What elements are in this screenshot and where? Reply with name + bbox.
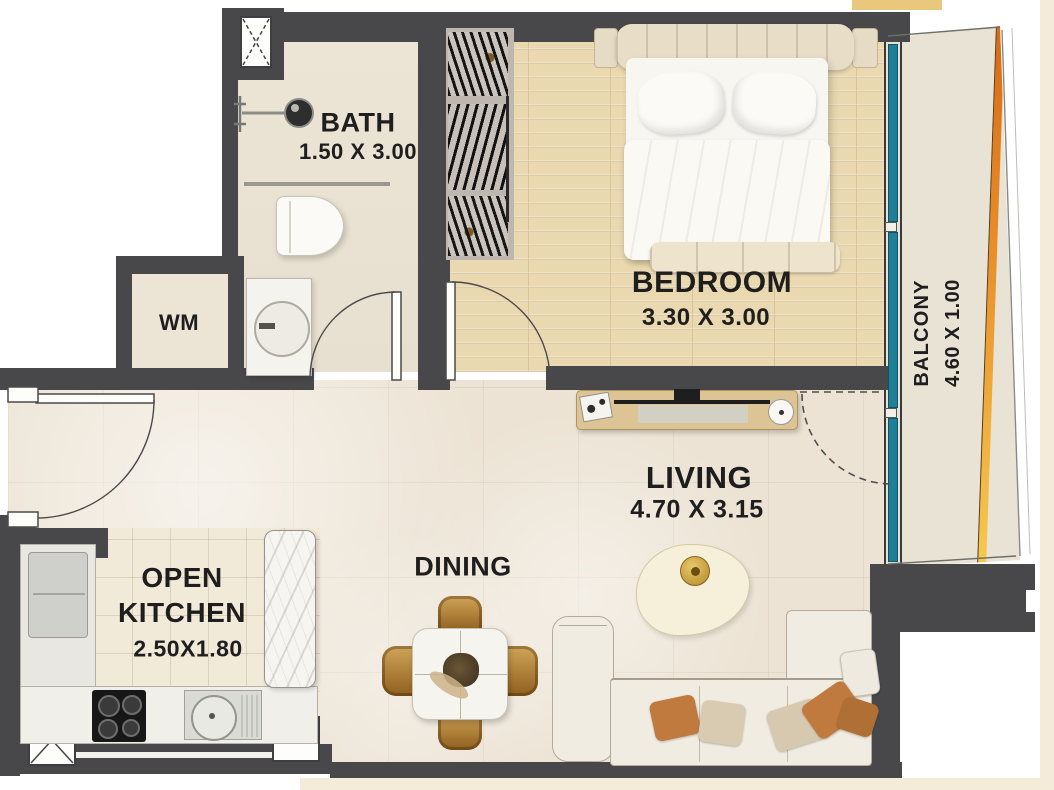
decor-bowl xyxy=(680,556,710,586)
page-edge-bottom xyxy=(300,778,1054,790)
bedroom-dims: 3.30 X 3.00 xyxy=(642,304,770,332)
corner-accent-top xyxy=(852,0,942,10)
cooktop xyxy=(92,690,146,742)
wardrobe-clothes xyxy=(448,32,508,96)
sink-drainboard xyxy=(241,695,259,737)
bath-label: BATH xyxy=(321,108,396,139)
kitchen-label-line2: KITCHEN xyxy=(118,597,246,629)
tv-box xyxy=(674,389,700,402)
wm-label: WM xyxy=(159,310,199,336)
window-glass xyxy=(888,44,898,222)
nightstand xyxy=(594,28,618,68)
chaise-lounge xyxy=(552,616,614,762)
vanity-sink xyxy=(246,278,312,376)
toilet xyxy=(276,196,344,256)
faucet xyxy=(259,323,275,329)
fridge xyxy=(28,552,88,638)
page-edge-right xyxy=(1040,0,1054,790)
kitchen-counter-bottom xyxy=(20,686,318,744)
sink-basin xyxy=(254,301,310,357)
balcony-label: BALCONY xyxy=(907,279,938,387)
nightstand xyxy=(852,28,878,68)
bed-pillow xyxy=(730,69,818,137)
wall-bath-left xyxy=(222,12,238,264)
wall-bedroom-bottom xyxy=(546,366,888,390)
dining-chair xyxy=(438,596,482,632)
balcony-label-group: BALCONY 4.60 X 1.00 xyxy=(868,238,1008,428)
living-label: LIVING xyxy=(646,460,752,496)
bath-dims: 1.50 X 3.00 xyxy=(299,139,417,165)
balcony-dims: 4.60 X 1.00 xyxy=(938,279,969,387)
dining-table xyxy=(412,628,508,720)
living-dims: 4.70 X 3.15 xyxy=(630,496,763,525)
window-mullion xyxy=(885,222,897,232)
record-player xyxy=(768,399,794,425)
wardrobe-clothes xyxy=(448,196,508,256)
wardrobe-clothes xyxy=(448,104,508,190)
kitchen-island xyxy=(264,530,316,688)
window-glass xyxy=(888,418,898,562)
kitchen-sink xyxy=(184,690,262,740)
tv-glow xyxy=(638,405,748,423)
kitchen-dims: 2.50X1.80 xyxy=(133,636,242,663)
wall-right-lower-horizontal xyxy=(870,564,1035,632)
kitchen-window-slot xyxy=(70,752,298,758)
floor-plan: BATH 1.50 X 3.00 BEDROOM 3.30 X 3.00 LIV… xyxy=(0,0,1054,790)
bedroom-label: BEDROOM xyxy=(632,266,792,300)
sofa-pillow xyxy=(697,699,746,747)
wall-kitchen-left xyxy=(0,556,20,776)
wardrobe-rail xyxy=(506,96,509,222)
wall-entry-top xyxy=(0,368,246,390)
speaker xyxy=(579,392,613,423)
duct-shaft-top xyxy=(240,16,272,68)
dining-label: DINING xyxy=(414,552,512,583)
kitchen-label-line1: OPEN xyxy=(141,562,222,594)
wardrobe xyxy=(446,28,514,260)
